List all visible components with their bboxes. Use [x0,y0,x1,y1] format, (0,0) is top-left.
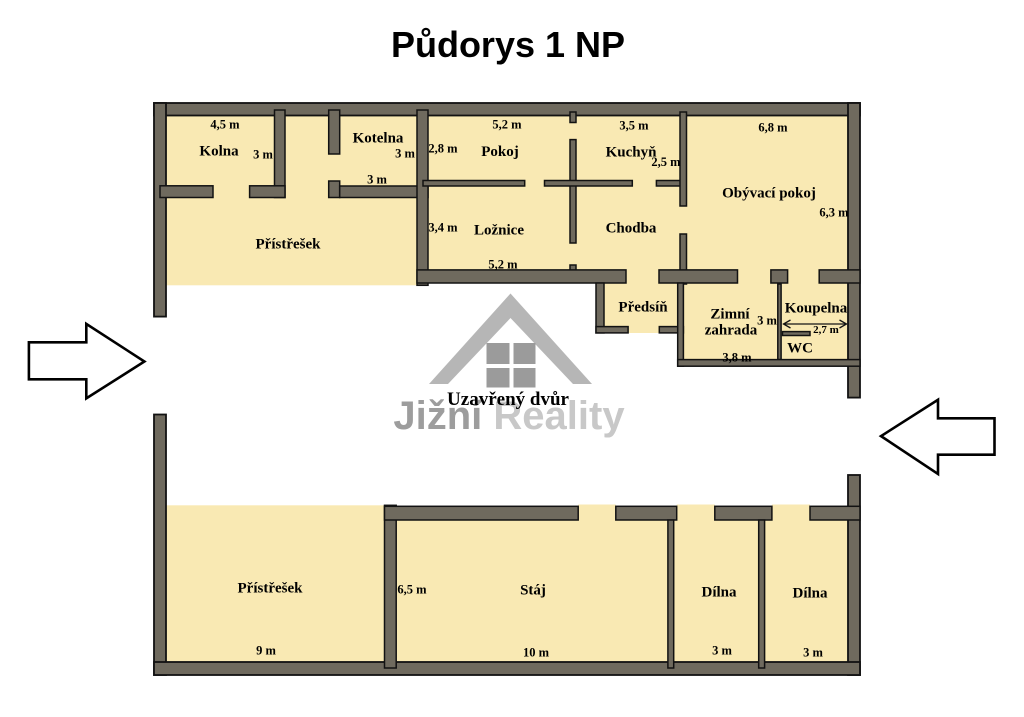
svg-text:6,3 m: 6,3 m [819,206,849,220]
svg-text:Přístřešek: Přístřešek [238,581,304,597]
svg-text:Půdorys 1 NP: Půdorys 1 NP [391,24,625,65]
svg-text:3 m: 3 m [803,646,823,660]
svg-text:3 m: 3 m [712,644,732,658]
svg-text:Pokoj: Pokoj [481,144,519,160]
svg-text:3 m: 3 m [253,148,273,162]
svg-text:Kotelna: Kotelna [353,131,404,147]
svg-text:Předsíň: Předsíň [618,300,668,316]
svg-text:Stáj: Stáj [520,583,546,599]
svg-text:3,5 m: 3,5 m [619,119,649,133]
svg-text:3 m: 3 m [757,314,777,328]
svg-text:6,5 m: 6,5 m [397,583,427,597]
svg-text:10 m: 10 m [523,646,550,660]
svg-text:3 m: 3 m [395,147,415,161]
svg-text:5,2 m: 5,2 m [492,118,522,132]
svg-text:3,8 m: 3,8 m [722,351,752,365]
svg-text:Dílna: Dílna [792,586,828,602]
svg-text:Chodba: Chodba [606,221,657,237]
svg-text:Koupelna: Koupelna [785,301,848,317]
svg-text:Přístřešek: Přístřešek [256,237,322,253]
svg-text:Ložnice: Ložnice [474,223,524,239]
svg-text:3 m: 3 m [367,173,387,187]
svg-text:5,2 m: 5,2 m [488,258,518,272]
svg-text:WC: WC [787,341,813,357]
svg-text:9 m: 9 m [256,644,276,658]
svg-text:Uzavřený dvůr: Uzavřený dvůr [447,389,569,410]
svg-text:Zimní: Zimní [710,307,750,323]
svg-text:Dílna: Dílna [701,585,737,601]
svg-text:Kolna: Kolna [199,144,239,160]
svg-text:2,5 m: 2,5 m [651,155,681,169]
svg-text:3,4 m: 3,4 m [428,221,458,235]
svg-text:2,8 m: 2,8 m [428,142,458,156]
svg-text:4,5 m: 4,5 m [210,118,240,132]
svg-text:Kuchyň: Kuchyň [606,145,658,161]
svg-text:Obývací pokoj: Obývací pokoj [722,186,816,202]
svg-text:6,8 m: 6,8 m [758,121,788,135]
svg-text:2,7 m: 2,7 m [813,324,839,336]
svg-text:zahrada: zahrada [705,323,758,339]
